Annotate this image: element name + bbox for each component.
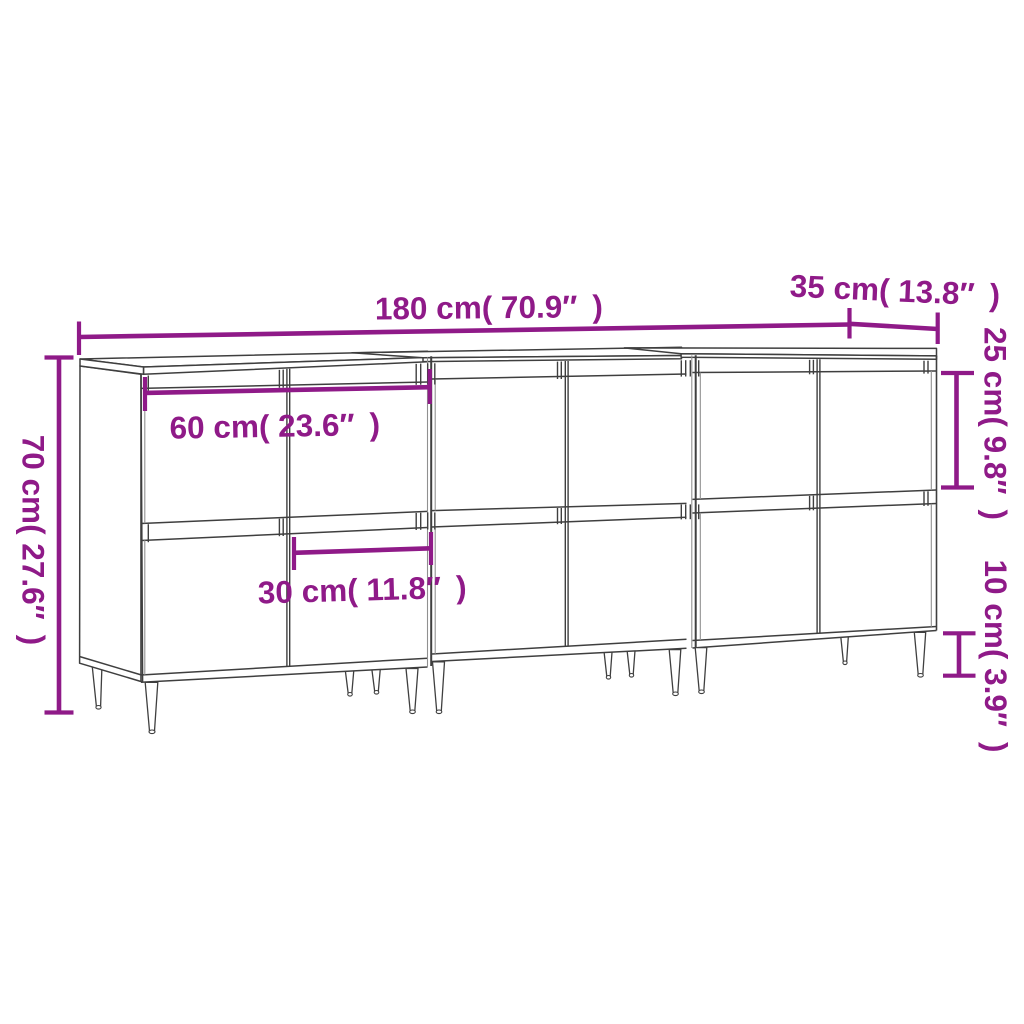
svg-text:10 cm( 3.9″ ): 10 cm( 3.9″ )	[978, 560, 1014, 753]
svg-text:180 cm( 70.9″ ): 180 cm( 70.9″ )	[375, 288, 603, 326]
svg-text:25 cm( 9.8″ ): 25 cm( 9.8″ )	[978, 327, 1014, 520]
svg-text:30 cm( 11.8″ ): 30 cm( 11.8″ )	[257, 569, 467, 611]
svg-text:60 cm( 23.6″ ): 60 cm( 23.6″ )	[169, 406, 380, 446]
svg-text:70 cm( 27.6″ ): 70 cm( 27.6″ )	[16, 435, 52, 646]
